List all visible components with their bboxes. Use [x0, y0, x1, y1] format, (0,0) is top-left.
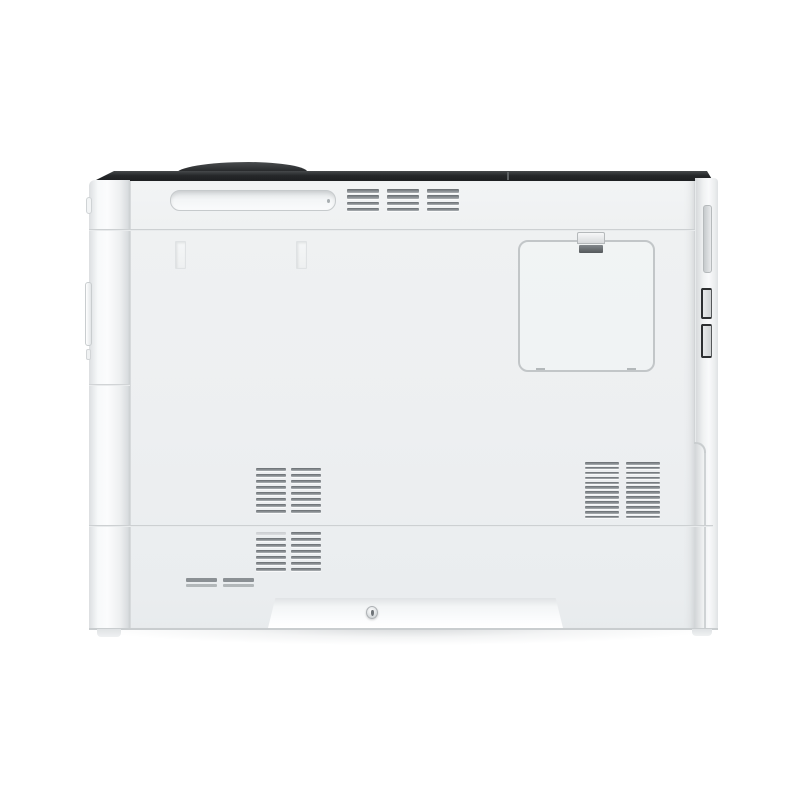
vent-slat	[585, 501, 619, 504]
access-door-tick	[536, 368, 545, 370]
vent-slat	[626, 501, 660, 504]
vent-column	[585, 462, 619, 518]
vent-slat	[291, 498, 321, 501]
vent-slat	[291, 568, 321, 571]
vent-slat	[291, 532, 321, 535]
vent-slat	[585, 516, 619, 519]
product-photo-stage	[0, 0, 800, 800]
vent-slat	[256, 492, 286, 495]
vent-slat	[256, 468, 286, 471]
screw	[366, 606, 378, 619]
info-labels-row	[186, 578, 254, 587]
vent-slat	[626, 467, 660, 470]
vent-column	[291, 532, 321, 571]
vent-slat	[585, 477, 619, 480]
info-label	[223, 578, 254, 587]
body-seam-top	[89, 229, 695, 231]
vent-slat	[291, 550, 321, 553]
rear-panel-seam-upper	[694, 181, 696, 443]
body-seam-mid	[89, 525, 713, 527]
vent-slat	[387, 202, 419, 206]
label-stripe	[223, 584, 254, 587]
top-edge-strip	[94, 171, 713, 181]
vent-slat	[585, 486, 619, 489]
vent-slat	[585, 467, 619, 470]
access-door	[518, 240, 655, 372]
front-edge-panel	[89, 180, 130, 630]
vent-column	[291, 468, 321, 513]
vent-slat	[585, 491, 619, 494]
vent-slat	[626, 472, 660, 475]
bottom-kick-recess	[268, 598, 563, 628]
rear-connector-bracket-lower	[701, 324, 712, 358]
vent-slat	[291, 556, 321, 559]
latch-clip	[579, 245, 603, 253]
vent-slat	[626, 491, 660, 494]
vent-slat	[291, 492, 321, 495]
vent-column	[427, 189, 459, 211]
vent-slat	[256, 538, 286, 541]
vent-slat	[585, 472, 619, 475]
vent-slat	[585, 496, 619, 499]
vent-slat	[585, 506, 619, 509]
foot-right	[692, 629, 712, 636]
vent-column	[256, 532, 286, 571]
vent-slat	[585, 462, 619, 465]
vent-slat	[347, 208, 379, 212]
vent-column	[256, 468, 286, 513]
access-door-latch	[577, 232, 605, 254]
vent-slat	[291, 474, 321, 477]
side-vent-grille-lower	[256, 532, 321, 571]
vent-slat	[291, 486, 321, 489]
latch-grip	[577, 232, 605, 244]
vent-slat	[626, 511, 660, 514]
vent-slat	[626, 516, 660, 519]
top-strip-seam	[507, 172, 509, 180]
vent-slat	[256, 568, 286, 571]
vent-slat	[291, 510, 321, 513]
vent-slat	[256, 504, 286, 507]
vent-slat	[427, 202, 459, 206]
foot-left	[97, 629, 121, 637]
vent-slat	[256, 474, 286, 477]
vent-slat	[626, 462, 660, 465]
vent-slat	[347, 195, 379, 199]
label-stripe	[186, 578, 217, 582]
body-bottom-edge	[89, 628, 718, 630]
vent-column	[347, 189, 379, 211]
vent-slat	[291, 544, 321, 547]
vent-slat	[347, 202, 379, 206]
vent-slat	[291, 480, 321, 483]
vent-slat	[387, 195, 419, 199]
vent-slat	[256, 486, 286, 489]
vent-column	[626, 462, 660, 518]
vent-slat	[291, 538, 321, 541]
access-door-tick	[627, 368, 636, 370]
printer-side-view	[0, 0, 800, 800]
vent-slat	[256, 562, 286, 565]
vent-slat	[291, 468, 321, 471]
vent-slat	[626, 486, 660, 489]
front-panel-seam	[89, 384, 130, 386]
top-vent-grille	[347, 189, 459, 211]
rear-panel-seam-lower	[704, 453, 706, 629]
front-edge-button	[86, 197, 92, 214]
side-vent-grille-upper	[256, 468, 321, 513]
vent-slat	[626, 477, 660, 480]
vent-slat	[626, 496, 660, 499]
info-label	[186, 578, 217, 587]
label-stripe	[186, 584, 217, 587]
carry-handle-recess	[170, 190, 336, 211]
vent-slat	[291, 504, 321, 507]
label-stripe	[223, 578, 254, 582]
vent-slat	[256, 480, 286, 483]
vent-slat	[256, 550, 286, 553]
vent-slat	[387, 208, 419, 212]
rear-connector-bracket-upper	[701, 288, 712, 319]
vent-slat	[256, 544, 286, 547]
vent-slat	[256, 510, 286, 513]
vent-slat	[585, 511, 619, 514]
vent-slat	[427, 195, 459, 199]
front-edge-handle-ridge	[85, 282, 92, 346]
vent-slat	[347, 189, 379, 193]
panel-slot	[296, 241, 307, 269]
vent-slat	[626, 482, 660, 485]
vent-slat	[585, 482, 619, 485]
vent-slat	[256, 532, 286, 535]
panel-slot	[175, 241, 186, 269]
vent-slat	[387, 189, 419, 193]
vent-slat	[256, 556, 286, 559]
vent-column	[387, 189, 419, 211]
vent-slat	[291, 562, 321, 565]
front-edge-notch	[86, 349, 91, 360]
rear-vent-grille	[585, 462, 660, 518]
vent-slat	[256, 498, 286, 501]
vent-slat	[427, 189, 459, 193]
vent-slat	[427, 208, 459, 212]
vent-slat	[626, 506, 660, 509]
rear-interface-slot	[703, 205, 712, 273]
